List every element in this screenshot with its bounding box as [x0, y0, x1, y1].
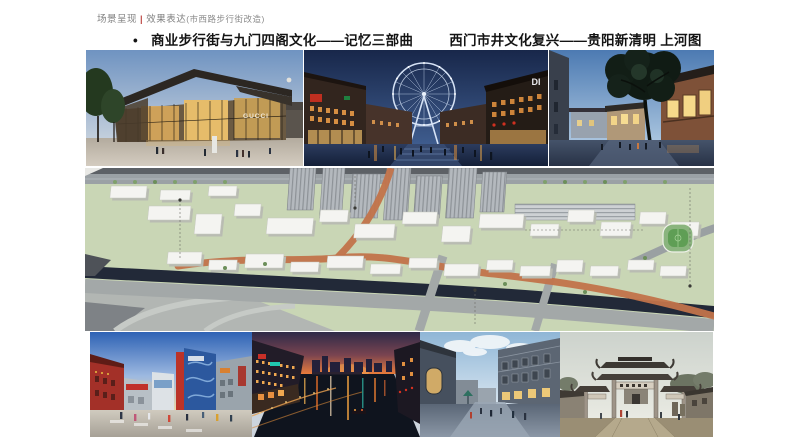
header-divider: | — [140, 14, 143, 25]
image-ferris-wheel-night: DI — [304, 50, 548, 166]
historic-street-render — [420, 332, 560, 437]
sports-field — [663, 224, 693, 252]
header-note: (市西路步行街改造) — [186, 14, 265, 24]
info-totem — [212, 136, 217, 153]
image-aerial-masterplan — [85, 168, 714, 331]
old-street-render — [549, 50, 714, 166]
image-historic-street-day — [420, 332, 560, 437]
mid-left-shop — [456, 380, 478, 406]
image-memorial-archway — [560, 332, 713, 437]
image-old-street-tree-dusk — [549, 50, 714, 166]
shop-glow — [667, 145, 699, 153]
right-main-building — [498, 338, 560, 408]
bullet-marker: • — [133, 33, 151, 48]
archway-render — [560, 332, 713, 437]
mid-buildings — [605, 102, 647, 142]
glass-pavilion-render: GUCCI — [86, 50, 303, 166]
gucci-sign: GUCCI — [243, 113, 269, 120]
header-subtitle: 效果表达 — [146, 14, 186, 25]
moon — [287, 78, 292, 83]
di-sign: DI — [532, 77, 541, 87]
bullet-text-right: 西门市井文化复兴——贵阳新清明 上河图 — [449, 33, 701, 48]
far-bridge — [312, 372, 362, 375]
pedestrian-warm — [637, 143, 639, 149]
light-reflection — [146, 140, 230, 146]
bullet-line: •商业步行街与九门四阁文化——记忆三部曲西门市井文化复兴——贵阳新清明 上河图 — [133, 29, 702, 49]
header-title: 场景呈现 — [97, 14, 137, 25]
modern-street-render — [90, 332, 252, 437]
image-glass-pavilion-dusk: GUCCI — [86, 50, 303, 166]
bullet-text-left: 商业步行街与九门四阁文化——记忆三部曲 — [151, 33, 413, 48]
image-canal-night — [252, 332, 420, 437]
presentation-slide: 场景呈现|效果表达(市西路步行街改造) •商业步行街与九门四阁文化——记忆三部曲… — [0, 0, 800, 440]
canal-night-render — [252, 332, 420, 437]
ferris-wheel-render: DI — [304, 50, 548, 166]
distant-buildings — [569, 108, 613, 138]
plaza — [90, 410, 252, 437]
slide-header: 场景呈现|效果表达(市西路步行街改造) — [97, 11, 265, 25]
image-modern-street-day — [90, 332, 252, 437]
masterplan-render — [85, 168, 714, 331]
blue-patterned-tower — [176, 348, 216, 416]
